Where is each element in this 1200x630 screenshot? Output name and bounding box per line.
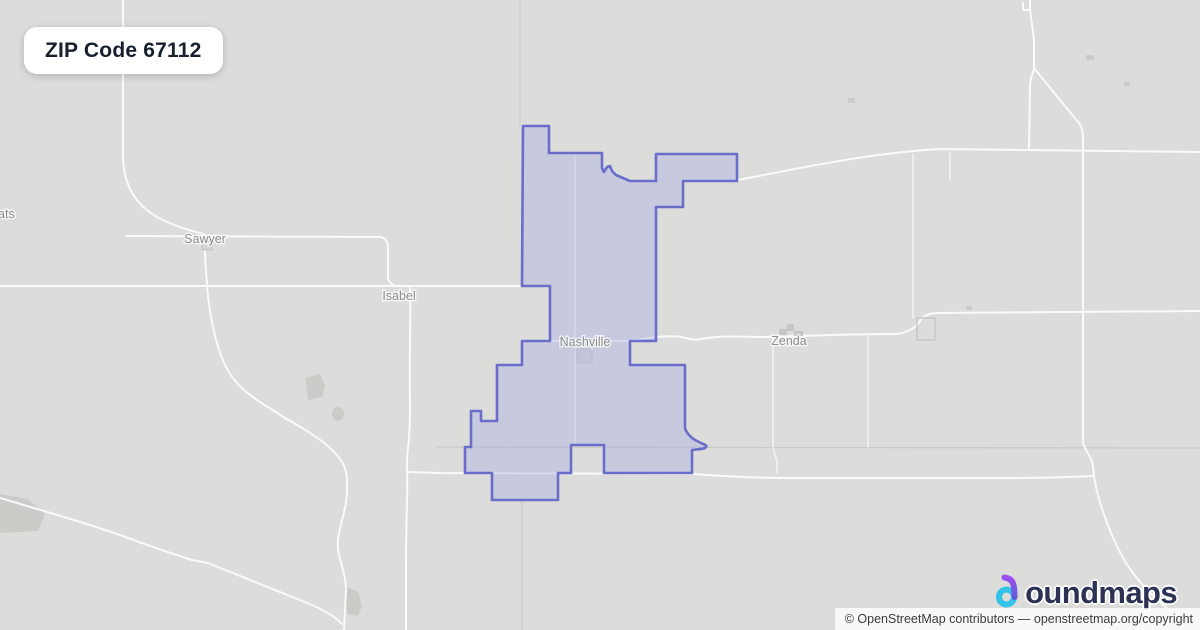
label-nashville: Nashville	[560, 335, 611, 349]
boundmaps-wordmark: oundmaps	[1025, 578, 1177, 608]
boundmaps-b-icon	[994, 573, 1024, 608]
label-zenda: Zenda	[771, 334, 806, 348]
osm-attribution-text[interactable]: © OpenStreetMap contributors — openstree…	[845, 612, 1193, 626]
osm-attribution[interactable]: © OpenStreetMap contributors — openstree…	[835, 608, 1200, 630]
zip-code-badge: ZIP Code 67112	[24, 27, 223, 74]
label-sawyer: Sawyer	[184, 232, 226, 246]
label-isabel: Isabel	[382, 289, 415, 303]
boundmaps-logo[interactable]: oundmaps	[994, 572, 1177, 608]
map-canvas[interactable]: Sawyer Isabel Nashville Zenda ats	[0, 0, 1200, 630]
zip-code-badge-label: ZIP Code 67112	[45, 39, 202, 63]
map-stage: Sawyer Isabel Nashville Zenda ats ZIP Co…	[0, 0, 1200, 630]
label-left-edge-partial: ats	[0, 207, 15, 221]
